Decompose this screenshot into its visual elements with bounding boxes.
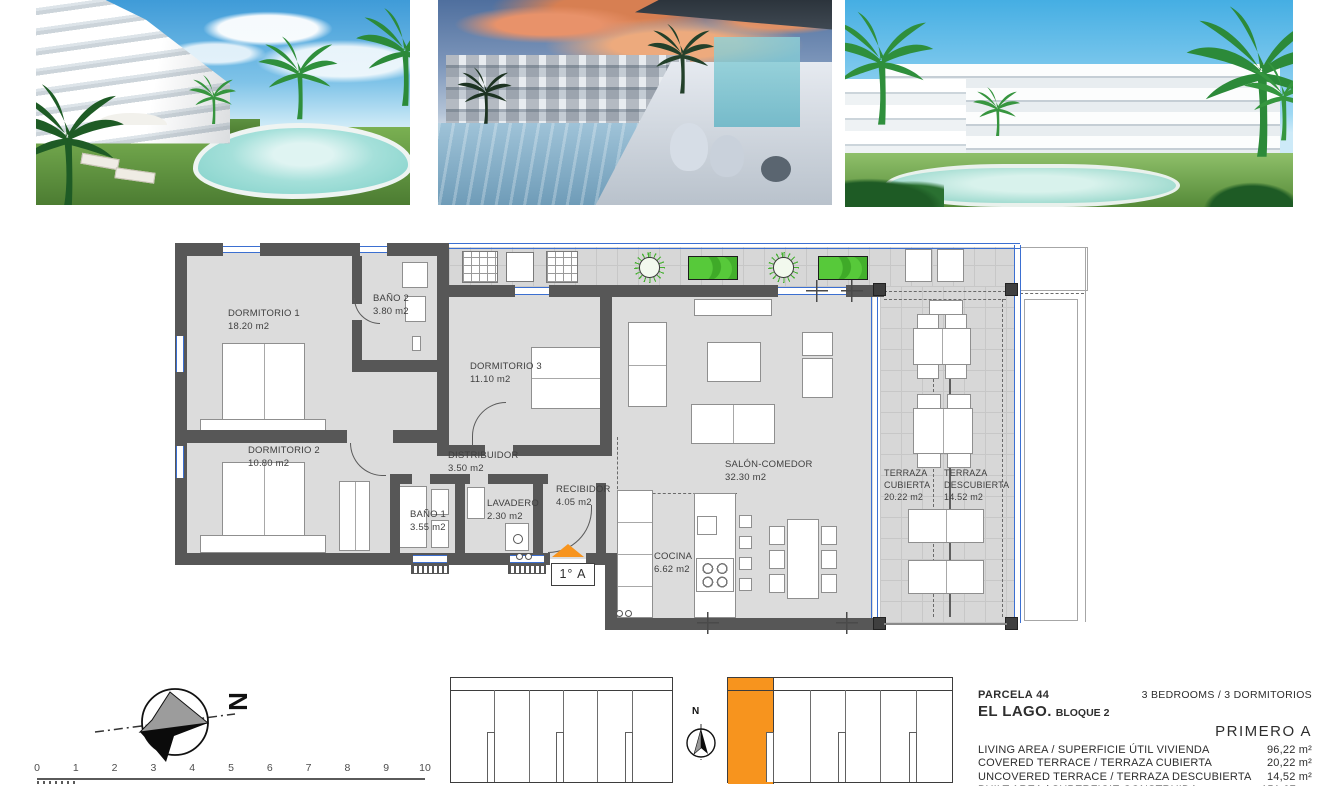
- outdoor-chair: [947, 394, 971, 409]
- room-label-lavadero: LAVADERO 2.30 m2: [487, 498, 557, 523]
- dining-chair: [821, 526, 837, 545]
- bed-headboard: [200, 535, 326, 553]
- key-plan-line: [728, 690, 952, 691]
- area-row-value: 14,52 m²: [1267, 771, 1312, 784]
- info-panel: PARCELA 44 3 BEDROOMS / 3 DORMITORIOS EL…: [978, 689, 1312, 786]
- survey-cross-icon: [836, 612, 858, 634]
- area-row: COVERED TERRACE / TERRAZA CUBIERTA 20,22…: [978, 757, 1312, 770]
- terrace-divider-dashed: [1002, 299, 1003, 617]
- sofa: [691, 404, 775, 444]
- outdoor-chair: [905, 249, 932, 282]
- terrace-edge-line: [884, 623, 1007, 625]
- kitchen-cabinets: [617, 490, 653, 618]
- unit-label: 1° A: [559, 567, 586, 581]
- sun-lounger: [908, 509, 984, 543]
- room-name: DORMITORIO 1: [228, 308, 340, 321]
- scale-tick: 3: [146, 762, 160, 774]
- outdoor-chair: [917, 314, 939, 329]
- parcela-label: PARCELA 44: [978, 689, 1049, 701]
- key-plan-compass-icon: [684, 723, 718, 763]
- block-label: BLOQUE 2: [1056, 707, 1110, 719]
- area-row-value: 20,22 m²: [1267, 757, 1312, 770]
- room-area: 11.10 m2: [470, 374, 564, 387]
- room-name: DISTRIBUIDOR: [448, 450, 540, 463]
- skylight-plain: [506, 252, 534, 282]
- outdoor-chair: [945, 314, 967, 329]
- window: [515, 287, 549, 295]
- sofa: [628, 322, 667, 407]
- bed: [222, 462, 305, 537]
- window: [176, 446, 184, 478]
- room-area: 14.52 m2: [944, 492, 1012, 504]
- key-plan-stair-core: [487, 732, 495, 782]
- key-plan-block-a: [450, 677, 673, 783]
- window: [360, 246, 387, 253]
- room-name: LAVADERO: [487, 498, 557, 511]
- wall: [390, 474, 400, 553]
- project-name: EL LAGO.: [978, 703, 1052, 720]
- key-plan-divider: [880, 690, 881, 782]
- scale-tick: 8: [340, 762, 354, 774]
- area-row: LIVING AREA / SUPERFICIE ÚTIL VIVIENDA 9…: [978, 744, 1312, 757]
- bedrooms-label: 3 BEDROOMS / 3 DORMITORIOS: [1142, 689, 1312, 701]
- scale-tick: 2: [108, 762, 122, 774]
- wall: [175, 553, 550, 565]
- room-label-recibidor: RECIBIDOR 4.05 m2: [556, 484, 626, 509]
- glass-facade: [871, 297, 878, 618]
- bar-stool: [739, 557, 752, 570]
- room-area: 3.50 m2: [448, 463, 540, 476]
- scale-tick: 5: [224, 762, 238, 774]
- key-plan-stair-core: [556, 732, 564, 782]
- skylight: [546, 251, 578, 283]
- wall: [430, 474, 470, 484]
- room-label-dormitorio-1: DORMITORIO 1 18.20 m2: [228, 308, 340, 333]
- window: [176, 336, 184, 372]
- wall: [175, 243, 187, 565]
- key-plan-north-letter: N: [692, 706, 699, 717]
- room-area: 10.80 m2: [248, 458, 360, 471]
- brochure-page: 1° A DORMITORIO 1 18.20 m2 BAÑO 2 3.80 m…: [0, 0, 1317, 786]
- entrance-arrow-icon: [552, 544, 584, 557]
- armchair: [802, 332, 833, 356]
- key-plan-stair-core: [766, 732, 774, 782]
- wall: [260, 243, 360, 256]
- wall: [440, 285, 515, 297]
- survey-cross-icon: [806, 280, 828, 302]
- room-label-bano-1: BAÑO 1 3.55 m2: [410, 509, 468, 534]
- coffee-table: [707, 342, 761, 382]
- wall: [393, 430, 442, 443]
- armchair: [802, 358, 833, 398]
- vent-grille-icon: [411, 565, 449, 574]
- bed: [222, 343, 305, 420]
- key-plan-line: [451, 690, 672, 691]
- outdoor-chair: [945, 364, 967, 379]
- scale-bar-line: [37, 778, 425, 780]
- bathroom-shelf: [412, 336, 421, 351]
- washer-drum: [513, 534, 523, 544]
- room-name: DORMITORIO 2: [248, 445, 360, 458]
- dining-table: [787, 519, 819, 599]
- room-area: 32.30 m2: [725, 472, 843, 485]
- bar-stool: [739, 515, 752, 528]
- scale-bar-subdivision: [37, 781, 76, 784]
- key-plan-divider: [810, 690, 811, 782]
- wall: [352, 360, 449, 372]
- room-name: RECIBIDOR: [556, 484, 626, 497]
- planter-box-icon: [818, 256, 868, 280]
- scale-tick: 0: [30, 762, 44, 774]
- dining-chair: [769, 526, 785, 545]
- area-row-value: 96,22 m²: [1267, 744, 1312, 757]
- vent-grille-icon: [508, 565, 546, 574]
- outdoor-chair: [917, 394, 941, 409]
- wall: [600, 297, 612, 447]
- room-name: BAÑO 2: [373, 293, 435, 306]
- unit-label-box: 1° A: [551, 563, 595, 586]
- room-label-dormitorio-3: DORMITORIO 3 11.10 m2: [470, 361, 564, 386]
- kitchen-sink: [697, 516, 717, 535]
- plot-line: [1085, 247, 1086, 622]
- wall: [387, 243, 440, 256]
- scale-tick: 1: [69, 762, 83, 774]
- dining-chair: [821, 574, 837, 593]
- room-area: 18.20 m2: [228, 321, 340, 334]
- wall: [352, 256, 362, 304]
- dining-chair: [821, 550, 837, 569]
- key-plan-divider: [529, 690, 530, 782]
- room-name: TERRAZA DESCUBIERTA: [944, 468, 1012, 492]
- plant-icon: [634, 252, 665, 283]
- wall: [549, 285, 778, 297]
- bathroom-sink: [402, 262, 428, 288]
- scale-tick: 9: [379, 762, 393, 774]
- dining-chair: [769, 550, 785, 569]
- adjacent-unit-outline: [1024, 299, 1078, 621]
- outdoor-side-table: [929, 300, 963, 315]
- survey-cross-icon: [841, 280, 863, 302]
- skylight: [462, 251, 498, 283]
- adjacent-unit-outline: [1020, 247, 1088, 291]
- planter-box-icon: [688, 256, 738, 280]
- sideboard: [694, 299, 772, 316]
- key-plan-stair-core: [909, 732, 917, 782]
- scale-tick: 6: [263, 762, 277, 774]
- bar-stool: [739, 536, 752, 549]
- room-label-distribuidor: DISTRIBUIDOR 3.50 m2: [448, 450, 540, 475]
- terrace-rail: [449, 243, 1020, 249]
- room-area: 20.22 m2: [884, 492, 940, 504]
- outdoor-chair: [947, 453, 971, 468]
- survey-cross-icon: [697, 612, 719, 634]
- room-label-terraza-descubierta: TERRAZA DESCUBIERTA 14.52 m2: [944, 468, 1012, 504]
- room-label-dormitorio-2: DORMITORIO 2 10.80 m2: [248, 445, 360, 470]
- key-plan-stair-core: [838, 732, 846, 782]
- area-row: UNCOVERED TERRACE / TERRAZA DESCUBIERTA …: [978, 771, 1312, 784]
- key-plan-block-b: [727, 677, 953, 783]
- room-label-salon-comedor: SALÓN-COMEDOR 32.30 m2: [725, 459, 843, 484]
- north-letter: N: [222, 692, 253, 711]
- scale-tick: 7: [302, 762, 316, 774]
- outdoor-chair: [937, 249, 964, 282]
- wardrobe: [339, 481, 370, 551]
- area-row-label: UNCOVERED TERRACE / TERRAZA DESCUBIERTA: [978, 771, 1251, 784]
- room-label-terraza-cubierta: TERRAZA CUBIERTA 20.22 m2: [884, 468, 940, 504]
- pillar: [1005, 283, 1018, 296]
- wall: [352, 320, 362, 362]
- area-row-label: COVERED TERRACE / TERRAZA CUBIERTA: [978, 757, 1212, 770]
- room-name: TERRAZA CUBIERTA: [884, 468, 940, 492]
- terrace-rail: [1014, 245, 1021, 623]
- dining-chair: [769, 574, 785, 593]
- scale-tick: 4: [185, 762, 199, 774]
- scale-tick: 10: [418, 762, 432, 774]
- wall: [175, 430, 347, 443]
- room-name: DORMITORIO 3: [470, 361, 564, 374]
- outdoor-table: [913, 328, 971, 365]
- floor-plan: 1° A DORMITORIO 1 18.20 m2 BAÑO 2 3.80 m…: [0, 0, 1317, 786]
- room-name: BAÑO 1: [410, 509, 468, 522]
- bar-stool: [739, 578, 752, 591]
- room-area: 3.80 m2: [373, 306, 435, 319]
- roof-edge-dashed: [884, 291, 1006, 292]
- plant-icon: [768, 252, 799, 283]
- wall: [437, 297, 449, 448]
- detail-circle: [625, 610, 632, 617]
- unit-name: PRIMERO A: [978, 723, 1312, 740]
- room-area: 6.62 m2: [654, 564, 712, 577]
- area-row-label: LIVING AREA / SUPERFICIE ÚTIL VIVIENDA: [978, 744, 1210, 757]
- room-name: SALÓN-COMEDOR: [725, 459, 843, 472]
- outdoor-chair: [917, 364, 939, 379]
- room-name: COCINA: [654, 551, 712, 564]
- room-label-cocina: COCINA 6.62 m2: [654, 551, 712, 576]
- wall: [488, 474, 548, 484]
- detail-circle: [616, 610, 623, 617]
- north-compass-icon: [90, 680, 240, 765]
- laundry-counter: [467, 487, 485, 519]
- key-plan-divider: [597, 690, 598, 782]
- pillar: [873, 283, 886, 296]
- sun-lounger: [908, 560, 984, 594]
- outdoor-dining-table: [913, 408, 973, 454]
- room-area: 4.05 m2: [556, 497, 626, 510]
- outdoor-chair: [917, 453, 941, 468]
- detail-circle: [516, 553, 523, 560]
- room-area: 3.55 m2: [410, 522, 468, 535]
- room-label-bano-2: BAÑO 2 3.80 m2: [373, 293, 435, 318]
- detail-circle: [525, 553, 532, 560]
- scale-bar-ticks: 0 1 2 3 4 5 6 7 8 9 10: [30, 762, 432, 774]
- window: [413, 555, 447, 563]
- key-plan-stair-core: [625, 732, 633, 782]
- window: [223, 246, 260, 253]
- room-area: 2.30 m2: [487, 511, 557, 524]
- boundary-dashed: [1020, 293, 1084, 294]
